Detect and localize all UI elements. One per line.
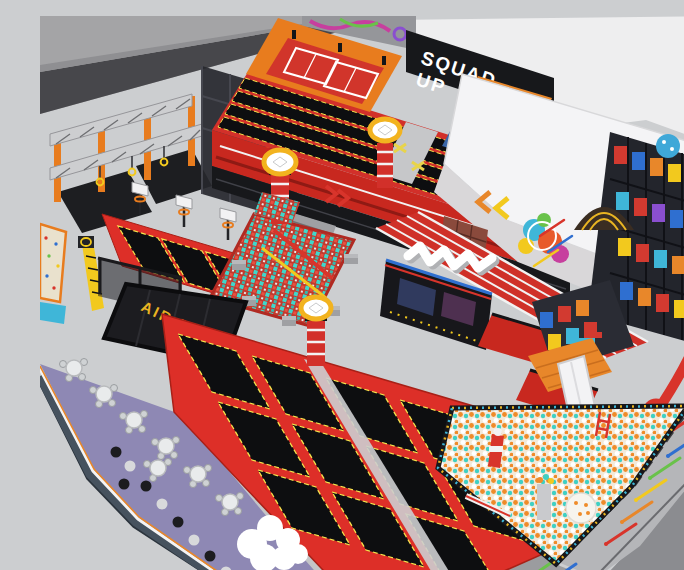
sphere-dot <box>662 140 666 144</box>
dot <box>578 512 582 516</box>
ottoman-top <box>282 316 296 320</box>
bean-bag-white <box>157 499 168 510</box>
table <box>190 466 206 482</box>
bean-bag-black <box>205 551 216 562</box>
ottoman-top <box>344 254 358 258</box>
bean-bag-white <box>189 535 200 546</box>
hold <box>56 264 59 267</box>
ottoman-top <box>242 296 256 300</box>
dart-tail <box>648 476 652 480</box>
table <box>126 412 142 428</box>
dot <box>584 503 588 507</box>
panel <box>616 192 629 210</box>
fencer-silhouette <box>338 43 342 52</box>
climbing-wall <box>40 224 66 302</box>
hold <box>52 286 55 289</box>
panel <box>668 164 681 182</box>
sphere-dot <box>670 147 674 151</box>
bean-bag-black <box>119 479 130 490</box>
panel <box>670 210 683 228</box>
table <box>66 360 82 376</box>
dot <box>586 511 590 515</box>
panel <box>650 158 663 176</box>
panel <box>634 198 647 216</box>
panel <box>558 306 571 322</box>
fencer-silhouette <box>292 30 296 39</box>
panel <box>614 146 627 164</box>
polka-dot-ball <box>566 493 596 523</box>
panel <box>656 294 669 312</box>
hold <box>44 236 47 239</box>
dart-tail <box>666 454 670 458</box>
hold <box>54 242 57 245</box>
bean-bag-black <box>173 517 184 528</box>
fencer-silhouette <box>382 56 386 65</box>
panel <box>654 250 667 268</box>
panel <box>652 204 665 222</box>
hold <box>47 254 50 257</box>
dart-tail <box>634 498 638 502</box>
fountain-ball <box>543 474 549 480</box>
panel <box>618 238 631 256</box>
panel <box>576 300 589 316</box>
table <box>222 494 238 510</box>
dot <box>574 501 578 505</box>
bean-bag-black <box>111 447 122 458</box>
dart-tail <box>604 542 608 546</box>
panel <box>620 282 633 300</box>
dart-tail <box>620 520 624 524</box>
panel <box>674 300 684 318</box>
fountain-ball <box>537 477 543 483</box>
panel <box>672 256 684 274</box>
fountain-ball <box>548 478 554 484</box>
rocket-band <box>489 446 503 452</box>
stair-step <box>586 332 602 338</box>
table <box>158 438 174 454</box>
hold <box>45 274 48 277</box>
table <box>96 386 112 402</box>
panel <box>566 328 579 344</box>
rocket-nose <box>494 428 502 436</box>
panel <box>636 244 649 262</box>
panel <box>632 152 645 170</box>
trampoline-park-render: SQUAD UP <box>40 16 684 570</box>
ottoman-top <box>232 260 246 264</box>
table <box>150 460 166 476</box>
panel <box>540 312 553 328</box>
bean-bag-black <box>141 481 152 492</box>
cloud-lobe <box>288 544 308 564</box>
panel <box>638 288 651 306</box>
ball-sphere-decoration <box>656 134 680 158</box>
bean-bag-white <box>125 461 136 472</box>
ball-fountain-tower <box>537 484 551 520</box>
